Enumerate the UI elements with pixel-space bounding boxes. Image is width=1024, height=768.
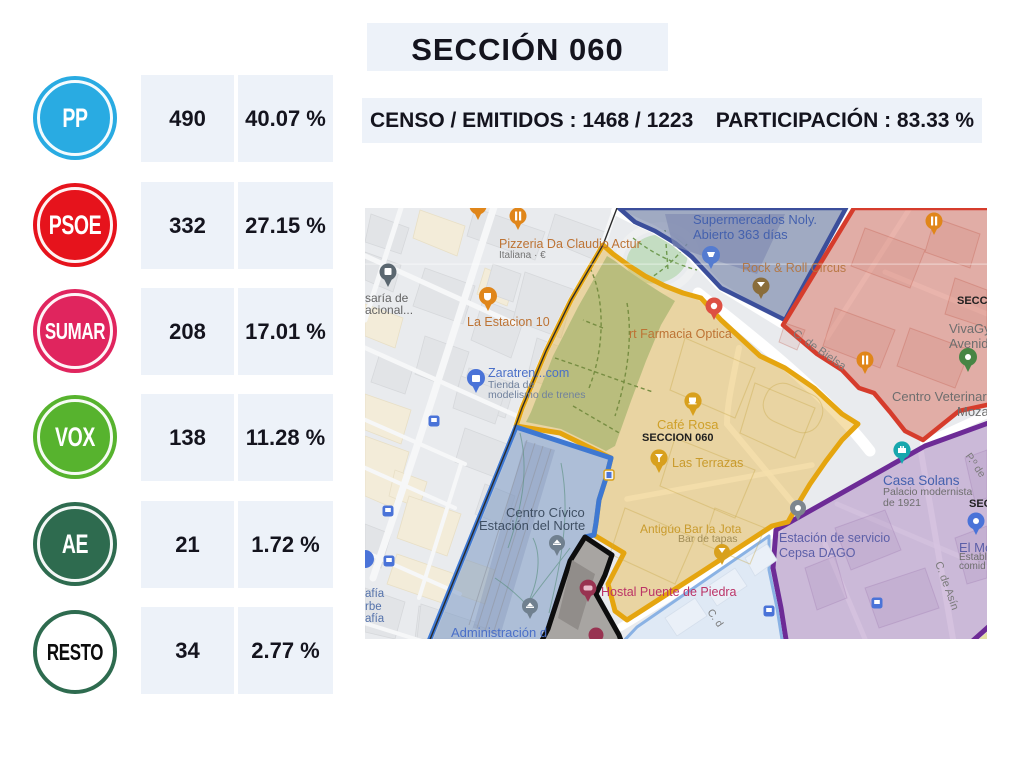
svg-text:Centro Veterinari: Centro Veterinari: [892, 389, 987, 404]
svg-text:rbe: rbe: [365, 601, 382, 613]
svg-text:SECCION 060: SECCION 060: [642, 432, 714, 444]
svg-text:Moza: Moza: [957, 404, 987, 419]
svg-text:comid: comid: [959, 561, 986, 572]
svg-text:Las Terrazas: Las Terrazas: [672, 456, 743, 470]
svg-text:Supermercados Noly.: Supermercados Noly.: [693, 212, 817, 227]
svg-text:de 1921: de 1921: [883, 497, 921, 509]
svg-text:Pizzeria Da Claudio Actur: Pizzeria Da Claudio Actur: [499, 237, 641, 251]
svg-text:Café Rosa: Café Rosa: [657, 417, 719, 432]
svg-text:Hostal Puente de Piedra: Hostal Puente de Piedra: [601, 585, 737, 599]
svg-text:Abierto 363 días: Abierto 363 días: [693, 227, 788, 242]
svg-text:Estación de servicio: Estación de servicio: [779, 531, 890, 545]
svg-text:Estación del Norte: Estación del Norte: [479, 518, 585, 533]
svg-text:SEC: SEC: [969, 498, 987, 510]
svg-text:VivaGy: VivaGy: [949, 321, 987, 336]
svg-text:La Estacion 10: La Estacion 10: [467, 315, 550, 329]
svg-text:Cepsa DAGO: Cepsa DAGO: [779, 546, 856, 560]
svg-text:Administración d: Administración d: [451, 625, 547, 639]
svg-text:afía: afía: [365, 613, 385, 625]
svg-text:afía: afía: [365, 588, 385, 600]
svg-text:acional...: acional...: [365, 303, 413, 317]
svg-text:Zaratren...com: Zaratren...com: [488, 366, 569, 380]
svg-text:Italiana · €: Italiana · €: [499, 250, 546, 261]
svg-text:rt Farmacia Optica: rt Farmacia Optica: [629, 327, 732, 341]
svg-text:Bar de tapas: Bar de tapas: [678, 533, 738, 545]
svg-text:modelismo de trenes: modelismo de trenes: [488, 389, 585, 401]
svg-text:SECCIO: SECCIO: [957, 295, 987, 307]
svg-text:Rock & Roll Circus: Rock & Roll Circus: [742, 261, 846, 275]
